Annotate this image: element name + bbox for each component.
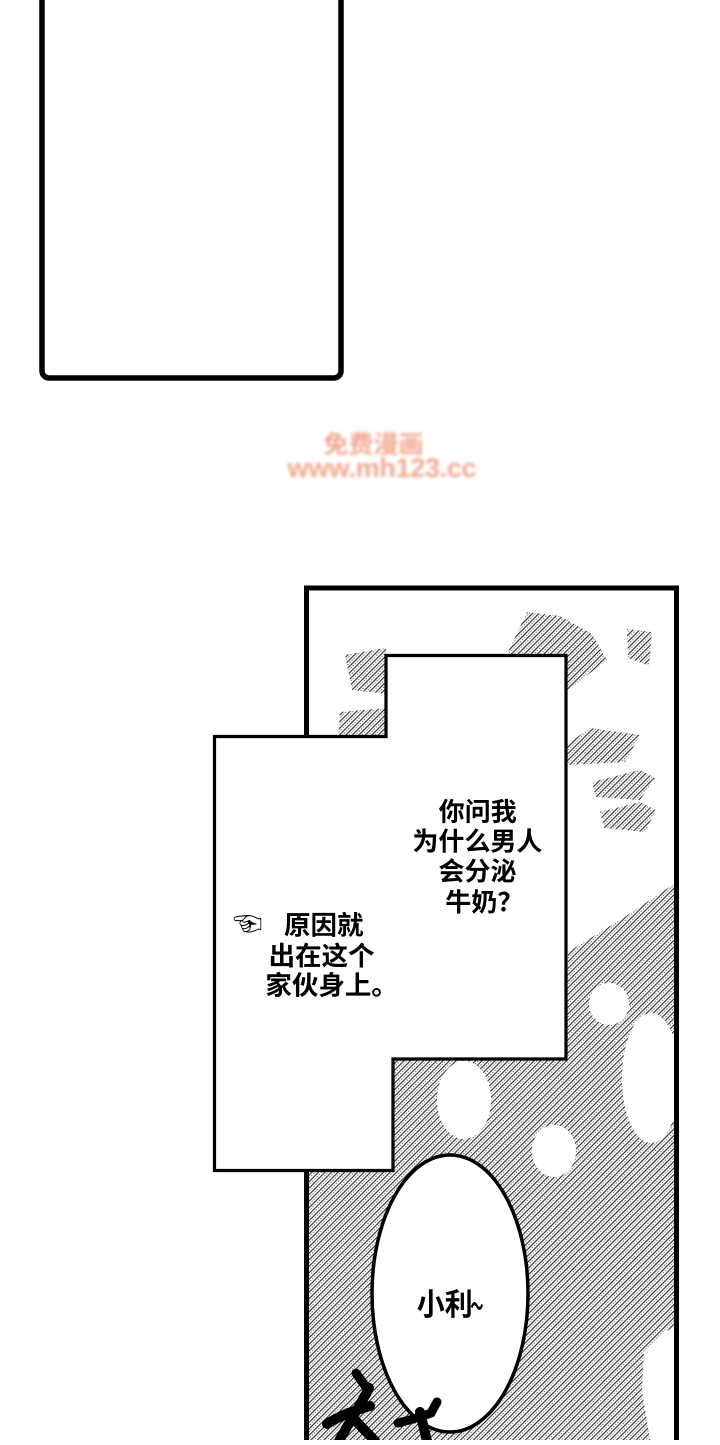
- svg-text:www.mh123.cc: www.mh123.cc: [287, 453, 477, 483]
